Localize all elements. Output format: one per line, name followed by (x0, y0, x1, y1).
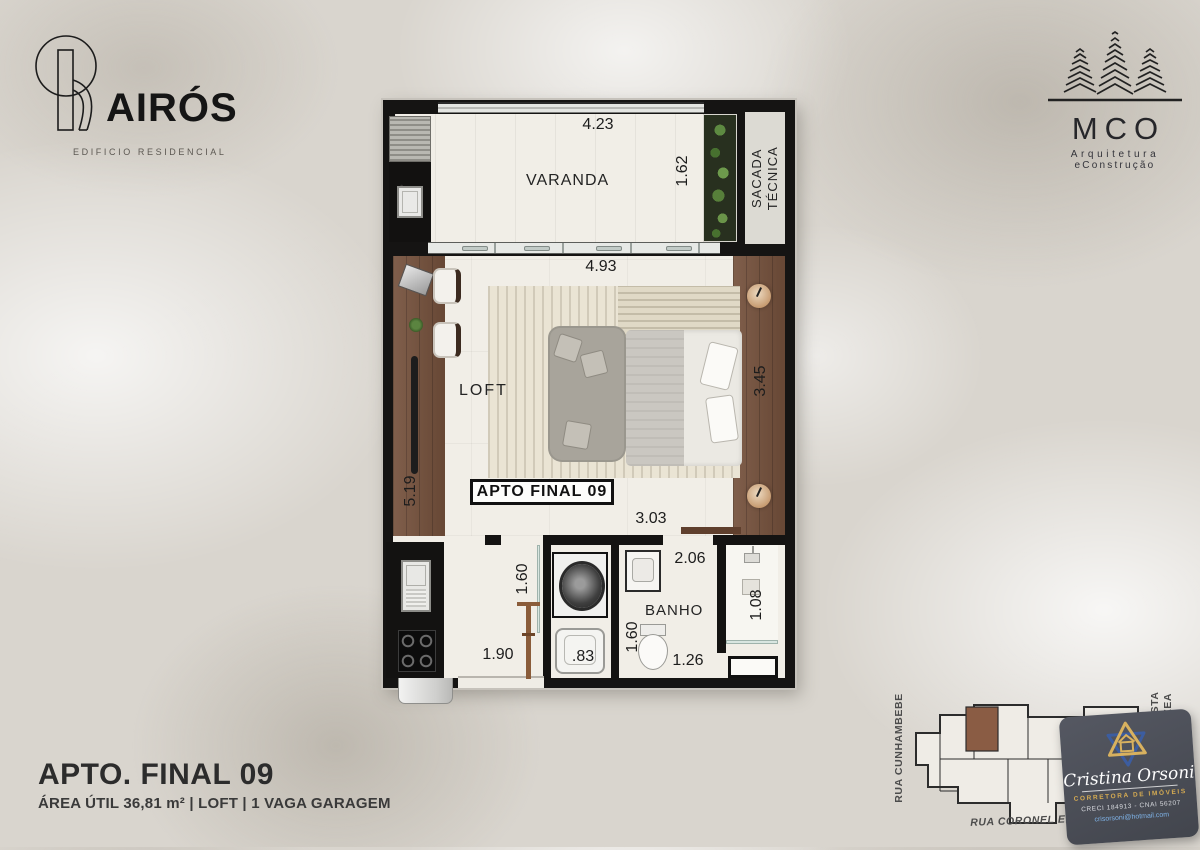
dim-laundry-depth: 1.60 (514, 557, 532, 601)
architect-name: MCO (1040, 111, 1190, 147)
dim-left-wall: 5.19 (402, 467, 420, 515)
highlighted-unit (966, 707, 998, 751)
planter (703, 114, 737, 242)
sofa (548, 326, 626, 462)
kitchen-sink (401, 560, 431, 612)
bed-blanket (626, 330, 684, 466)
door-handle (666, 246, 692, 251)
dim-banho-bottom: 1.26 (663, 652, 713, 670)
bed-pillow (705, 394, 739, 443)
service-niche (728, 656, 778, 678)
building-logo: AIRÓS EDIFICIO RESIDENCIAL (24, 28, 264, 148)
varanda-label: VARANDA (526, 172, 609, 190)
building-subtitle: EDIFICIO RESIDENCIAL (73, 147, 227, 157)
washer-drum (562, 564, 602, 608)
unit-specs: ÁREA ÚTIL 36,81 m² | LOFT | 1 VAGA GARAG… (38, 795, 391, 812)
wall (611, 543, 619, 680)
sofa-pillow (562, 420, 592, 450)
dim-loft-width: 4.93 (561, 258, 641, 276)
architect-logo: MCO Arquitetura eConstrução (1040, 24, 1190, 164)
wall (485, 535, 501, 545)
realtor-email: crisorsoni@hotmail.com (1094, 811, 1169, 823)
wall (543, 535, 663, 545)
dim-varanda-depth: 1.62 (674, 149, 692, 193)
loft-label: LOFT (459, 382, 508, 400)
unit-label-box: APTO FINAL 09 (470, 479, 614, 505)
building-name: AIRÓS (106, 86, 238, 131)
sliding-door (428, 242, 720, 254)
unit-title: APTO. FINAL 09 (38, 758, 391, 792)
sofa-pillow (553, 333, 583, 363)
desk-chair (433, 322, 461, 358)
wall (543, 543, 551, 680)
sconce-lamp-icon (747, 284, 771, 308)
architect-tagline-1: Arquitetura (1040, 149, 1190, 160)
grill-sink (397, 186, 423, 218)
dim-entry-width: 1.90 (473, 646, 523, 664)
bed-pillow (699, 341, 739, 391)
shower-glass (726, 640, 778, 644)
sacada-tecnica-label: SACADA TÉCNICA (749, 146, 782, 210)
dim-hall-width: 3.03 (621, 510, 681, 528)
entrance-opening (458, 676, 544, 688)
varanda-window (438, 102, 704, 113)
washing-machine (552, 552, 608, 618)
door-handle (596, 246, 622, 251)
door-handle (524, 246, 550, 251)
laptop (398, 264, 434, 297)
door-handle (462, 246, 488, 251)
stove (398, 630, 436, 672)
kitchen-counter (386, 542, 444, 678)
tv (411, 356, 418, 474)
floor-plan: VARANDA 4.23 1.62 SACADA TÉCNICA (383, 100, 795, 688)
desk-chair (433, 268, 461, 304)
towers-icon (1040, 24, 1190, 104)
sconce-lamp-icon (747, 484, 771, 508)
sofa-pillow (579, 349, 608, 378)
realtor-star-logo-icon (1100, 717, 1153, 770)
dim-shower-depth: 1.08 (748, 583, 766, 627)
entrance-door (526, 605, 531, 679)
grill-counter (389, 162, 431, 242)
street-label-left: RUA CUNHAMBEBE (893, 692, 905, 804)
wall (717, 543, 726, 653)
dim-loft-depth: 3.45 (752, 357, 770, 405)
bed (626, 330, 742, 466)
desk-plant (409, 318, 423, 332)
dim-banho-depth: 1.60 (624, 615, 642, 659)
realtor-badge: Cristina Orsoni CORRETORA DE IMÓVEIS CRE… (1059, 709, 1200, 846)
banho-label: BANHO (645, 602, 703, 619)
grill (389, 116, 431, 162)
title-block: APTO. FINAL 09 ÁREA ÚTIL 36,81 m² | LOFT… (38, 758, 391, 812)
dim-banho-top: 2.06 (665, 550, 715, 568)
glass-partition (537, 545, 540, 633)
bathroom-sink (625, 550, 661, 592)
dim-varanda-width: 4.23 (558, 116, 638, 134)
sacada-tecnica-floor: SACADA TÉCNICA (745, 112, 785, 244)
architect-tagline-2: eConstrução (1040, 160, 1190, 171)
dim-laundry-width: .83 (561, 648, 605, 666)
shower-head (744, 553, 760, 563)
wood-ledge (681, 527, 741, 534)
